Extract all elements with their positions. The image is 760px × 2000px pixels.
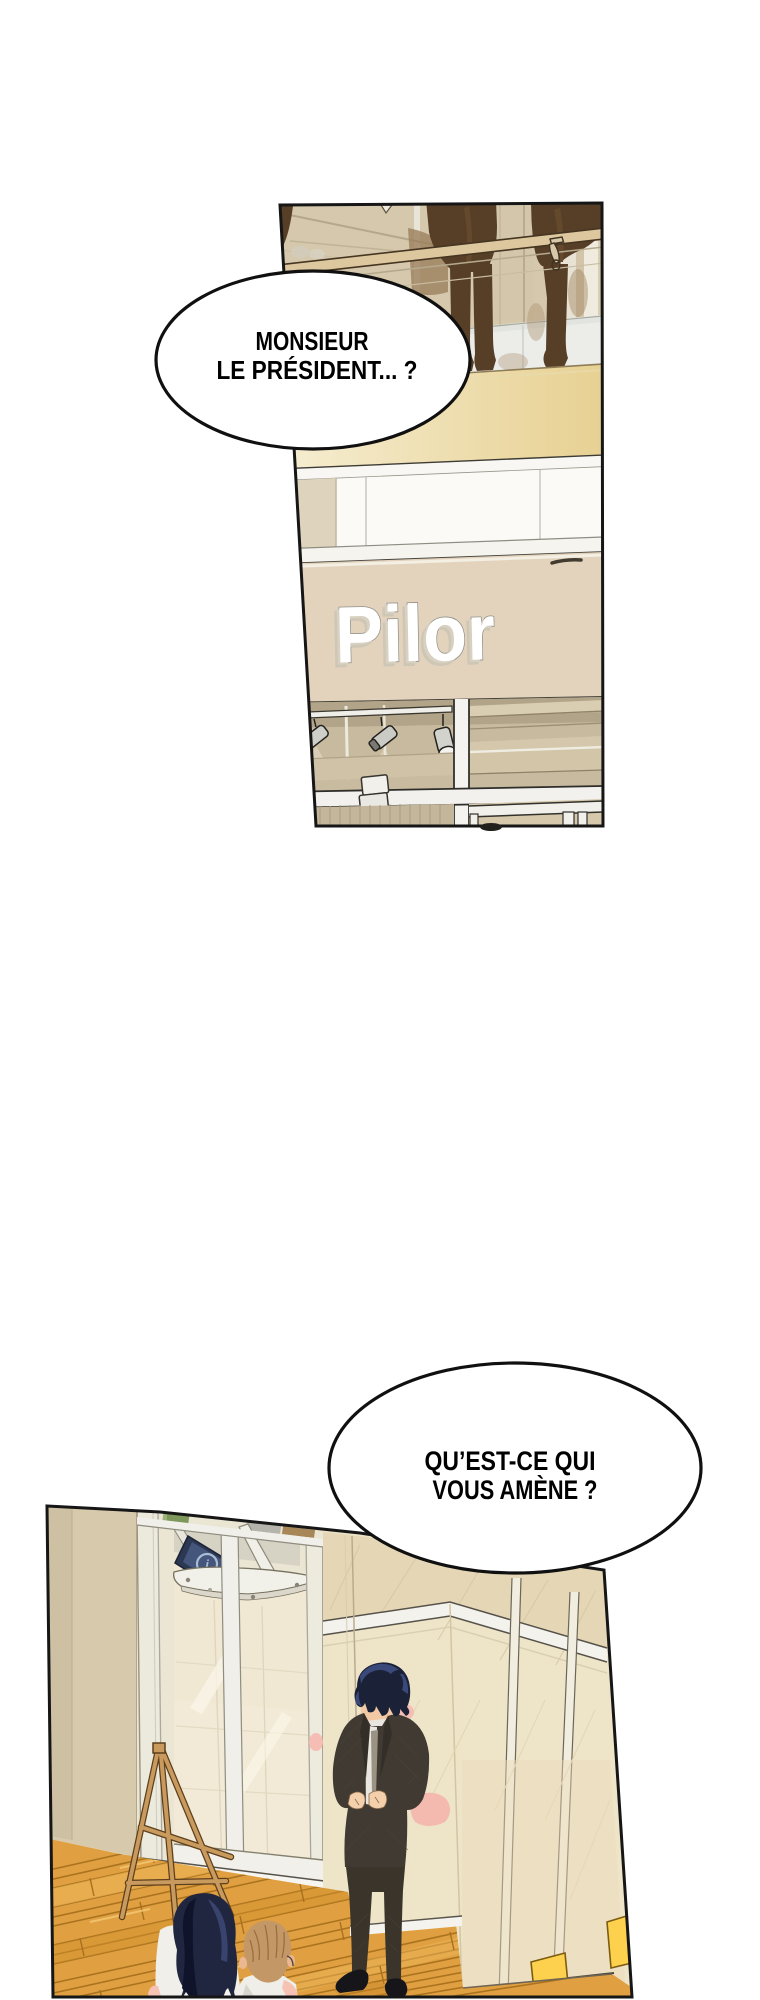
svg-text:MONSIEUR: MONSIEUR: [256, 326, 369, 356]
svg-text:LE PRÉSIDENT... ?: LE PRÉSIDENT... ?: [217, 355, 418, 385]
svg-text:Pilor: Pilor: [334, 587, 496, 679]
svg-text:VOUS AMÈNE ?: VOUS AMÈNE ?: [433, 1474, 598, 1505]
svg-text:QU’EST-CE QUI: QU’EST-CE QUI: [425, 1446, 596, 1476]
